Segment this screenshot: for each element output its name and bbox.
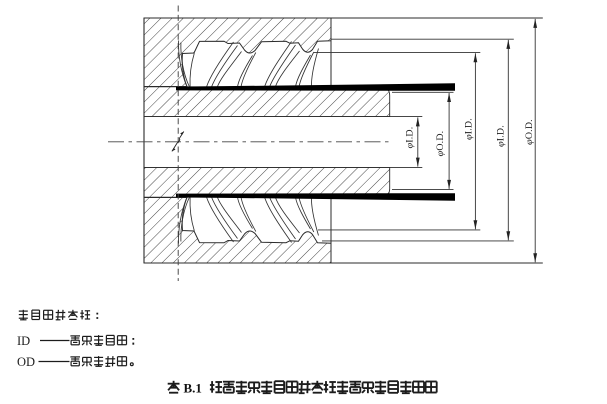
svg-text:ID: ID [17,334,30,348]
svg-text:B.1: B.1 [184,381,202,396]
svg-text:φI.D.: φI.D. [496,125,507,147]
svg-text:φO.D.: φO.D. [435,131,446,157]
svg-text:φI.D.: φI.D. [405,127,416,149]
svg-text:φO.D.: φO.D. [524,119,535,145]
svg-text:OD: OD [17,355,35,369]
svg-text:φI.D.: φI.D. [463,118,474,140]
